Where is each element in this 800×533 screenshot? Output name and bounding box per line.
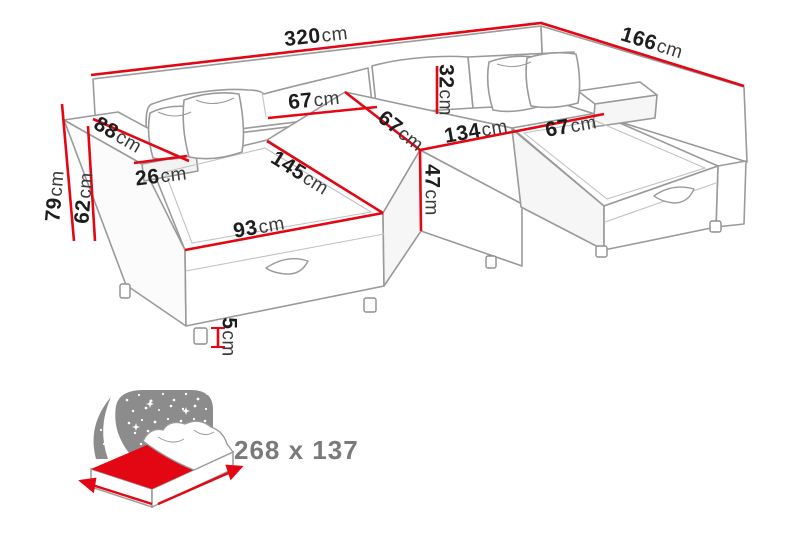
- sofa-bed-function-icon: [81, 390, 241, 507]
- sofa-dimension-diagram: 320cm 166cm 79cm 62cm 88cm 26cm 67cm 67c…: [0, 0, 800, 533]
- dim-label-backrest-width: 67cm: [287, 87, 341, 113]
- night-sky-sliver: [94, 397, 111, 459]
- dim-label-total-height: 79cm: [42, 169, 67, 222]
- dim-label-height-62: 62cm: [71, 171, 96, 224]
- dim-label-seat-height: 47cm: [422, 164, 443, 216]
- dim-label-leg-height: 5cm: [219, 317, 240, 357]
- dim-label-backrest-height: 32cm: [436, 64, 457, 116]
- sofa-line-art: [0, 0, 800, 533]
- sleeping-area-size-label: 268 x 137: [234, 437, 359, 463]
